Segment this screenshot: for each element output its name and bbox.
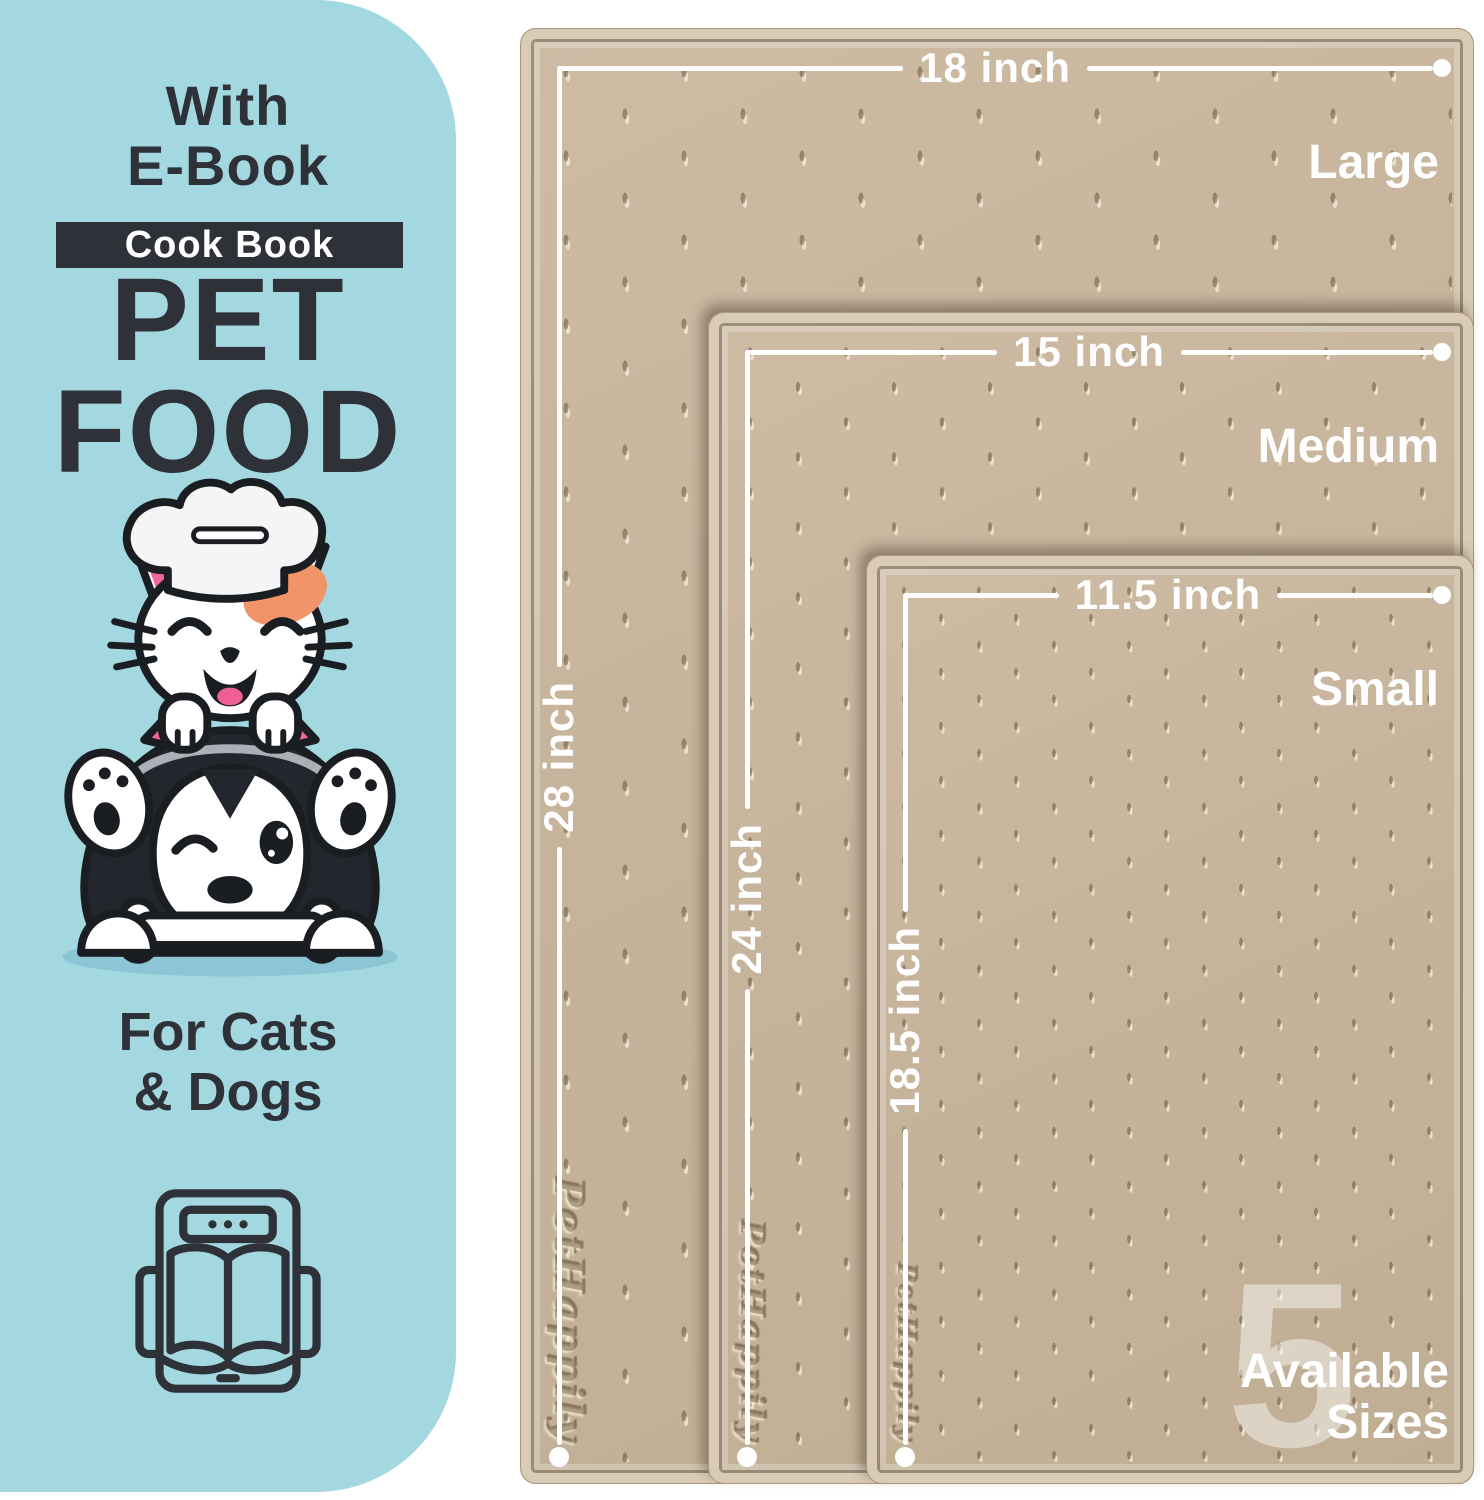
for-cats-dogs-text: For Cats & Dogs (0, 1002, 456, 1123)
mat-large-height-label: 28 inch (535, 667, 583, 847)
dimension-line (903, 1129, 908, 1445)
dimension-endpoint-dot (737, 1447, 757, 1467)
dimension-endpoint-dot (895, 1447, 915, 1467)
pet-food-title-line1: PET (0, 264, 456, 376)
available-sizes-line2: Sizes (1240, 1398, 1449, 1449)
dimension-line (745, 353, 750, 809)
dimension-endpoint-dot (1433, 59, 1451, 77)
dimension-line (1181, 350, 1433, 355)
mat-medium-width-label: 15 inch (997, 328, 1181, 376)
for-cats-dogs-line1: For Cats (0, 1002, 456, 1062)
mat-small-height-dimension: 18.5 inch (883, 596, 927, 1467)
dimension-line (745, 989, 750, 1445)
chef-cat-and-dog-illustration (18, 468, 442, 993)
promo-panel: With E-Book Cook Book PET FOOD (0, 0, 456, 1492)
mat-large-height-dimension: 28 inch (537, 69, 581, 1467)
ebook-heading: With E-Book (0, 76, 456, 196)
dimension-line (557, 66, 903, 71)
mat-small-height-label: 18.5 inch (881, 912, 929, 1129)
dimension-endpoint-dot (1433, 586, 1451, 604)
mat-medium-height-label: 24 inch (723, 809, 771, 989)
dimension-line (745, 350, 997, 355)
ebook-reader-icon (130, 1186, 326, 1396)
mat-large-size-label: Large (1308, 135, 1439, 190)
mat-medium-size-label: Medium (1258, 419, 1439, 474)
mat-small-width-dimension: 11.5 inch (903, 572, 1451, 618)
for-cats-dogs-line2: & Dogs (0, 1062, 456, 1122)
mat-large-width-dimension: 18 inch (557, 45, 1451, 91)
dimension-endpoint-dot (1433, 343, 1451, 361)
ebook-heading-line1: With (0, 76, 456, 136)
ebook-heading-line2: E-Book (0, 136, 456, 196)
available-sizes-line1: Available (1240, 1347, 1449, 1398)
dimension-line (557, 847, 562, 1445)
mat-small: 11.5 inch 18.5 inch Small PetHappily 5 A… (866, 555, 1474, 1484)
pet-food-title: PET FOOD (0, 264, 456, 488)
dimension-line (1087, 66, 1433, 71)
available-sizes-text: Available Sizes (1240, 1347, 1449, 1449)
dimension-endpoint-dot (549, 1447, 569, 1467)
dimension-line (557, 69, 562, 667)
mat-medium-width-dimension: 15 inch (745, 329, 1451, 375)
product-image: With E-Book Cook Book PET FOOD (0, 0, 1484, 1500)
mat-small-size-label: Small (1311, 662, 1439, 717)
dimension-line (1277, 593, 1433, 598)
mat-small-width-label: 11.5 inch (1059, 571, 1277, 619)
mat-large-width-label: 18 inch (903, 44, 1087, 92)
dimension-line (903, 596, 908, 912)
mat-medium-height-dimension: 24 inch (725, 353, 769, 1467)
